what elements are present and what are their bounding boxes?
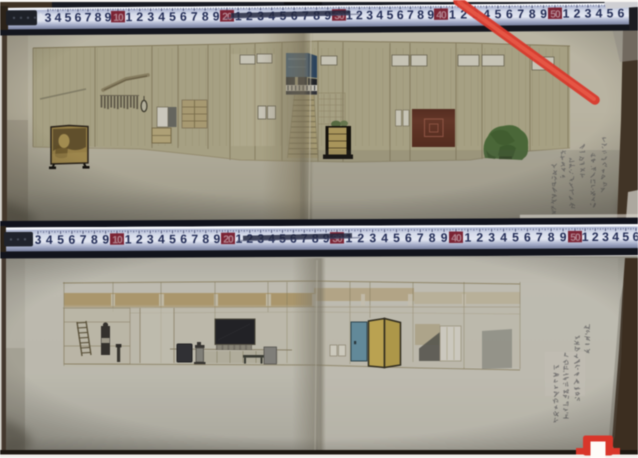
svg-text:9: 9 xyxy=(427,8,434,22)
svg-text:40: 40 xyxy=(451,233,462,244)
svg-text:8: 8 xyxy=(529,7,536,21)
svg-text:7: 7 xyxy=(517,7,524,21)
svg-text:3: 3 xyxy=(366,8,373,22)
svg-text:10: 10 xyxy=(112,235,123,246)
svg-text:3: 3 xyxy=(602,230,609,244)
svg-text:2: 2 xyxy=(592,230,599,244)
svg-text:5: 5 xyxy=(387,8,394,22)
svg-text:6: 6 xyxy=(524,230,531,244)
svg-text:5: 5 xyxy=(495,7,502,21)
svg-text:6: 6 xyxy=(405,231,412,245)
svg-text:1: 1 xyxy=(125,10,132,24)
svg-text:9: 9 xyxy=(560,230,567,244)
svg-text:6: 6 xyxy=(618,6,625,20)
svg-text:6: 6 xyxy=(75,10,82,24)
svg-text:4: 4 xyxy=(55,11,62,25)
svg-text:7: 7 xyxy=(191,232,198,246)
svg-text:4: 4 xyxy=(381,231,388,245)
svg-text:4: 4 xyxy=(158,232,165,246)
svg-text:40: 40 xyxy=(436,10,447,21)
svg-text:50: 50 xyxy=(570,233,581,244)
svg-text:4: 4 xyxy=(46,233,53,247)
svg-text:3: 3 xyxy=(585,6,592,20)
svg-text:9: 9 xyxy=(213,232,220,246)
svg-text:5: 5 xyxy=(65,11,72,25)
svg-text:5: 5 xyxy=(169,232,176,246)
svg-text:4: 4 xyxy=(596,6,603,20)
svg-text:5: 5 xyxy=(57,233,64,247)
svg-text:1: 1 xyxy=(563,7,570,21)
svg-text:8: 8 xyxy=(548,230,555,244)
svg-text:6: 6 xyxy=(180,232,187,246)
svg-text:3: 3 xyxy=(45,11,52,25)
svg-text:20: 20 xyxy=(223,235,234,246)
svg-text:1: 1 xyxy=(235,232,242,246)
svg-text:4: 4 xyxy=(612,230,619,244)
svg-text:7: 7 xyxy=(80,233,87,247)
svg-text:5: 5 xyxy=(169,10,176,24)
svg-text:7: 7 xyxy=(85,10,92,24)
svg-text:4: 4 xyxy=(158,10,165,24)
svg-text:4: 4 xyxy=(500,230,507,244)
svg-text:7: 7 xyxy=(191,10,198,24)
svg-text:5: 5 xyxy=(393,231,400,245)
svg-text:6: 6 xyxy=(506,7,513,21)
svg-text:2: 2 xyxy=(136,232,143,246)
svg-text:2: 2 xyxy=(476,231,483,245)
svg-text:8: 8 xyxy=(429,231,436,245)
svg-text:6: 6 xyxy=(180,10,187,24)
svg-text:8: 8 xyxy=(95,10,102,24)
svg-text:8: 8 xyxy=(91,233,98,247)
svg-text:3: 3 xyxy=(369,231,376,245)
svg-text:9: 9 xyxy=(213,9,220,23)
svg-text:8: 8 xyxy=(202,9,209,23)
svg-text:6: 6 xyxy=(397,8,404,22)
svg-text:3: 3 xyxy=(488,231,495,245)
svg-text:7: 7 xyxy=(536,230,543,244)
svg-text:8: 8 xyxy=(417,8,424,22)
svg-text:6: 6 xyxy=(633,230,638,244)
svg-text:8: 8 xyxy=(202,232,209,246)
svg-text:3: 3 xyxy=(147,232,154,246)
svg-text:6: 6 xyxy=(68,233,75,247)
svg-text:9: 9 xyxy=(105,10,112,24)
svg-text:1: 1 xyxy=(449,8,456,22)
svg-text:9: 9 xyxy=(102,233,109,247)
svg-text:7: 7 xyxy=(407,8,414,22)
svg-text:9: 9 xyxy=(441,231,448,245)
svg-text:2: 2 xyxy=(356,8,363,22)
svg-text:5: 5 xyxy=(622,230,629,244)
svg-text:5: 5 xyxy=(512,230,519,244)
svg-text:1: 1 xyxy=(464,231,471,245)
svg-text:4: 4 xyxy=(376,8,383,22)
svg-text:9: 9 xyxy=(540,7,547,21)
svg-text:2: 2 xyxy=(136,10,143,24)
svg-text:2: 2 xyxy=(574,7,581,21)
svg-text:7: 7 xyxy=(417,231,424,245)
svg-text:3: 3 xyxy=(147,10,154,24)
svg-text:50: 50 xyxy=(550,9,561,20)
svg-text:1: 1 xyxy=(582,230,589,244)
svg-text:10: 10 xyxy=(113,13,124,24)
svg-text:1: 1 xyxy=(125,232,132,246)
